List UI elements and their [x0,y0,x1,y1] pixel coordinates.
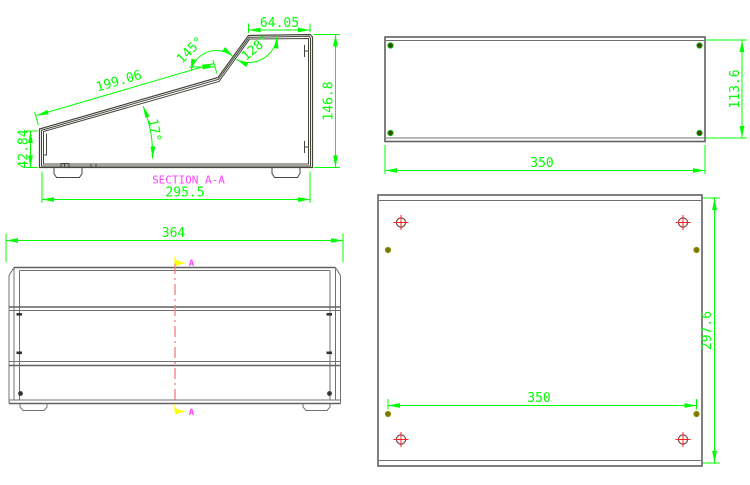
section-foot-left [54,168,82,178]
section-foot-right [272,168,300,178]
section-right-wall-clip-lower [305,141,309,153]
front-chamfer-left [9,268,14,276]
bottom-screw-top-left [385,247,390,252]
bottom-screw-bottom-right [694,411,699,416]
dim-right-height-label: 146.8 [322,81,337,120]
dim-upper-angle-label: 145° [174,34,207,67]
dim-back-width-label: 350 [530,156,553,171]
front-slot-right-upper [327,313,333,316]
front-screw-left [18,391,23,396]
section-right-wall-clip-upper [305,45,309,57]
dim-slope-angle-label: 17° [145,118,164,144]
dim-back-height-label: 113.6 [728,69,743,108]
foot-hole-bottom-left [394,432,409,447]
section-cut-arrow-bottom [175,404,185,412]
section-left-wall-detail [44,134,47,156]
dim-19906-ext-left [35,112,39,125]
dim-top-width-label: 64.05 [260,16,299,31]
front-foot-right [303,404,330,411]
back-panel-outline [385,37,705,142]
section-marker-bottom: A [189,408,195,418]
bottom-screw-top-right [694,247,699,252]
front-slot-left-upper [17,313,23,316]
back-view: 350 113.6 [385,37,747,174]
front-view: 364 A A [6,226,343,418]
foot-hole-top-left [394,215,409,230]
dim-bottom-depth-label: 297.6 [700,311,715,350]
section-view: 64.05 145° 128° 199.06 17° 42.84 146.8 S… [17,16,341,203]
front-slot-right-lower [327,352,333,355]
bottom-screw-bottom-left [385,411,390,416]
dim-front-width-label: 364 [162,226,186,241]
dim-bottom-width-label: 295.5 [165,186,204,201]
back-screw-bottom-right [697,130,702,135]
front-foot-left [20,404,47,411]
bottom-view: 350 297.6 [378,195,720,466]
back-screw-bottom-left [388,130,393,135]
back-screw-top-right [697,43,702,48]
front-screw-right [327,391,332,396]
front-slot-left-lower [17,352,23,355]
drawing-canvas: 64.05 145° 128° 199.06 17° 42.84 146.8 S… [0,0,750,485]
back-screw-top-left [388,43,393,48]
cad-drawing-page: { "colors": { "dimension_green": "#00ff0… [0,0,750,485]
foot-hole-top-right [676,215,691,230]
front-chamfer-right [336,268,341,276]
dim-bottom-width-label: 350 [527,391,550,406]
section-marker-top: A [189,259,195,269]
bottom-panel-outline [378,195,702,466]
section-cut-arrow-top [175,257,185,264]
foot-hole-bottom-right [676,432,691,447]
dim-left-height-label: 42.84 [17,129,32,168]
